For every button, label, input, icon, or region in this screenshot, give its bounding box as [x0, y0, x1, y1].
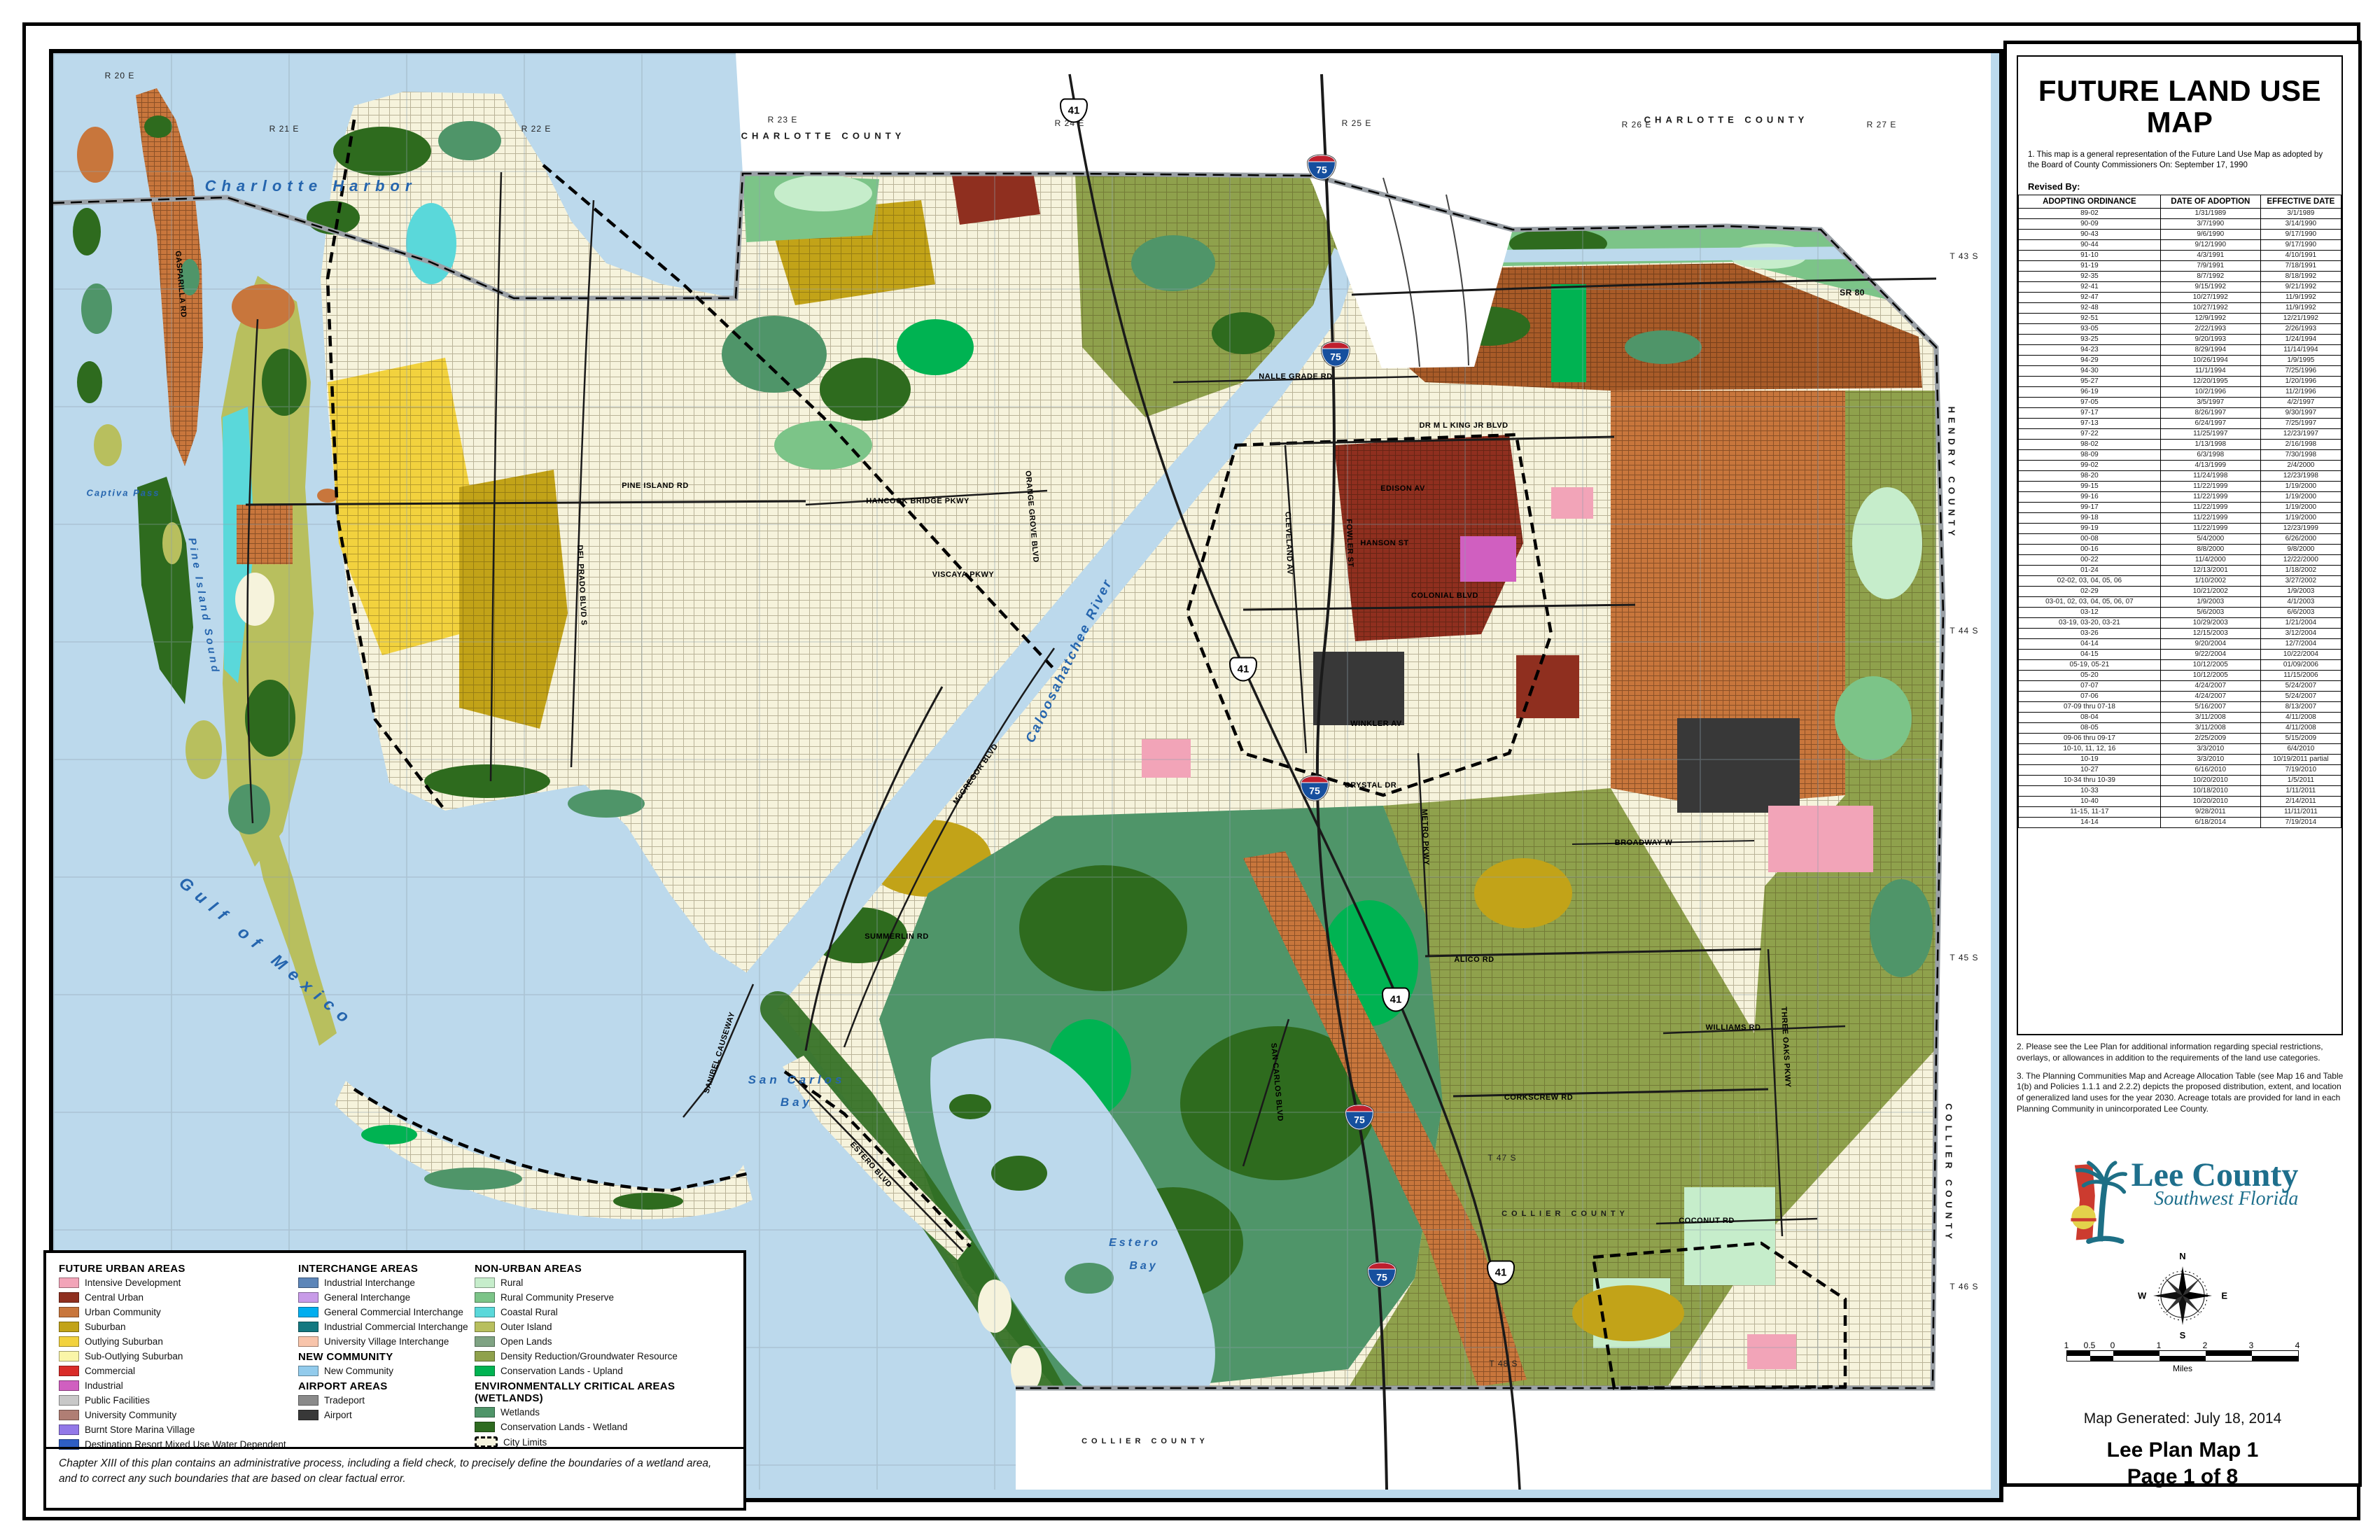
table-cell: 11/9/1992 — [2260, 292, 2341, 302]
table-cell: 6/24/1997 — [2160, 418, 2260, 428]
legend-swatch — [475, 1436, 498, 1448]
table-cell: 98-20 — [2019, 470, 2161, 481]
table-cell: 90-09 — [2019, 218, 2161, 229]
title-box: FUTURE LAND USE MAP 1. This map is a gen… — [2017, 55, 2343, 1035]
scale-bar: 10.501234 Miles — [2066, 1340, 2299, 1373]
table-row: 96-1910/2/199611/2/1996 — [2019, 386, 2341, 397]
table-cell: 09-06 thru 09-17 — [2019, 733, 2161, 743]
note-3: 3. The Planning Communities Map and Acre… — [2017, 1071, 2344, 1115]
table-cell: 6/18/2014 — [2160, 817, 2260, 827]
table-cell: 5/16/2007 — [2160, 701, 2260, 712]
table-cell: 10/21/2002 — [2160, 586, 2260, 596]
legend-swatch — [298, 1277, 318, 1288]
table-row: 90-449/12/19909/17/1990 — [2019, 239, 2341, 250]
table-cell: 11/11/2011 — [2260, 806, 2341, 817]
table-cell: 07-07 — [2019, 680, 2161, 691]
table-row: 10-34 thru 10-3910/20/20101/5/2011 — [2019, 775, 2341, 785]
legend-swatch — [59, 1307, 79, 1317]
table-cell: 7/9/1991 — [2160, 260, 2260, 271]
table-row: 00-2211/4/200012/22/2000 — [2019, 554, 2341, 565]
legend-swatch — [298, 1322, 318, 1332]
legend-item: Public Facilities — [59, 1395, 283, 1406]
compass-w: W — [2138, 1291, 2146, 1301]
table-cell: 92-51 — [2019, 313, 2161, 323]
table-cell: 1/5/2011 — [2260, 775, 2341, 785]
table-row: 99-1511/22/19991/19/2000 — [2019, 481, 2341, 491]
table-cell: 2/4/2000 — [2260, 460, 2341, 470]
table-row: 91-197/9/19917/18/1991 — [2019, 260, 2341, 271]
title-panel: FUTURE LAND USE MAP 1. This map is a gen… — [2003, 41, 2362, 1487]
table-cell: 9/17/1990 — [2260, 239, 2341, 250]
table-cell: 96-19 — [2019, 386, 2161, 397]
legend-item-label: New Community — [324, 1366, 393, 1376]
table-cell: 12/7/2004 — [2260, 638, 2341, 649]
table-cell: 03-19, 03-20, 03-21 — [2019, 617, 2161, 628]
table-cell: 11/24/1998 — [2160, 470, 2260, 481]
table-cell: 1/18/2002 — [2260, 565, 2341, 575]
table-row: 05-2010/12/200511/15/2006 — [2019, 670, 2341, 680]
legend-item: Burnt Store Marina Village — [59, 1424, 283, 1435]
legend-item-label: Intensive Development — [85, 1277, 181, 1288]
scale-tick: 1 — [2157, 1340, 2162, 1350]
table-row: 98-096/3/19987/30/1998 — [2019, 449, 2341, 460]
table-cell: 08-05 — [2019, 722, 2161, 733]
scale-ticks: 10.501234 — [2066, 1340, 2299, 1350]
table-cell: 9/30/1997 — [2260, 407, 2341, 418]
table-cell: 05-19, 05-21 — [2019, 659, 2161, 670]
table-cell: 02-02, 03, 04, 05, 06 — [2019, 575, 2161, 586]
table-cell: 7/19/2014 — [2260, 817, 2341, 827]
table-cell: 1/13/1998 — [2160, 439, 2260, 449]
table-cell: 12/9/1992 — [2160, 313, 2260, 323]
table-cell: 1/20/1996 — [2260, 376, 2341, 386]
col-header-effective: EFFECTIVE DATE — [2260, 195, 2341, 208]
table-row: 90-439/6/19909/17/1990 — [2019, 229, 2341, 239]
table-cell: 7/25/1997 — [2260, 418, 2341, 428]
table-cell: 11-15, 11-17 — [2019, 806, 2161, 817]
table-row: 93-259/20/19931/24/1994 — [2019, 334, 2341, 344]
legend-item: Outlying Suburban — [59, 1336, 283, 1347]
table-row: 89-021/31/19893/1/1989 — [2019, 208, 2341, 218]
compass-n: N — [2179, 1251, 2185, 1261]
table-cell: 3/1/1989 — [2260, 208, 2341, 218]
map-generated-date: Map Generated: July 18, 2014 — [2007, 1410, 2358, 1427]
legend-item: Commercial — [59, 1366, 283, 1376]
table-cell: 1/19/2000 — [2260, 491, 2341, 502]
table-cell: 98-09 — [2019, 449, 2161, 460]
table-row: 97-178/26/19979/30/1997 — [2019, 407, 2341, 418]
legend-swatch — [298, 1292, 318, 1303]
table-cell: 11/2/1996 — [2260, 386, 2341, 397]
legend-column-interchange: INTERCHANGE AREASIndustrial InterchangeG… — [298, 1261, 459, 1454]
table-cell: 9/6/1990 — [2160, 229, 2260, 239]
table-cell: 12/13/2001 — [2160, 565, 2260, 575]
table-cell: 91-10 — [2019, 250, 2161, 260]
table-cell: 97-13 — [2019, 418, 2161, 428]
table-cell: 3/27/2002 — [2260, 575, 2341, 586]
table-cell: 94-30 — [2019, 365, 2161, 376]
table-cell: 10/12/2005 — [2160, 659, 2260, 670]
legend-item: Tradeport — [298, 1395, 459, 1406]
legend-item-label: Burnt Store Marina Village — [85, 1424, 195, 1435]
legend-item-label: Industrial Interchange — [324, 1277, 415, 1288]
table-cell: 3/3/2010 — [2160, 743, 2260, 754]
legend-section-title: INTERCHANGE AREAS — [298, 1263, 459, 1275]
legend-item-label: Industrial Commercial Interchange — [324, 1322, 468, 1332]
table-cell: 4/3/1991 — [2160, 250, 2260, 260]
legend-item: General Commercial Interchange — [298, 1307, 459, 1317]
table-cell: 5/4/2000 — [2160, 533, 2260, 544]
legend-column-future-urban: FUTURE URBAN AREASIntensive DevelopmentC… — [59, 1261, 283, 1454]
legend-item-label: Urban Community — [85, 1307, 161, 1317]
table-cell: 1/31/1989 — [2160, 208, 2260, 218]
table-row: 10-10, 11, 12, 163/3/20106/4/2010 — [2019, 743, 2341, 754]
table-cell: 10-33 — [2019, 785, 2161, 796]
table-row: 10-276/16/20107/19/2010 — [2019, 764, 2341, 775]
legend-swatch — [59, 1366, 79, 1376]
table-cell: 03-12 — [2019, 607, 2161, 617]
legend-swatch — [298, 1307, 318, 1317]
table-cell: 9/21/1992 — [2260, 281, 2341, 292]
table-cell: 5/24/2007 — [2260, 680, 2341, 691]
table-row: 04-149/20/200412/7/2004 — [2019, 638, 2341, 649]
table-cell: 8/18/1992 — [2260, 271, 2341, 281]
table-cell: 1/9/1995 — [2260, 355, 2341, 365]
table-cell: 99-19 — [2019, 523, 2161, 533]
table-row: 90-093/7/19903/14/1990 — [2019, 218, 2341, 229]
table-cell: 03-26 — [2019, 628, 2161, 638]
table-row: 97-136/24/19977/25/1997 — [2019, 418, 2341, 428]
legend-swatch — [59, 1277, 79, 1288]
table-cell: 11/14/1994 — [2260, 344, 2341, 355]
legend-item: Rural Community Preserve — [475, 1292, 736, 1303]
table-cell: 14-14 — [2019, 817, 2161, 827]
table-cell: 00-16 — [2019, 544, 2161, 554]
legend-item: Urban Community — [59, 1307, 283, 1317]
table-cell: 4/24/2007 — [2160, 691, 2260, 701]
legend-item-label: Public Facilities — [85, 1395, 150, 1406]
table-cell: 92-35 — [2019, 271, 2161, 281]
table-cell: 11/22/1999 — [2160, 512, 2260, 523]
legend-item-label: Conservation Lands - Upland — [500, 1366, 623, 1376]
table-cell: 4/11/2008 — [2260, 712, 2341, 722]
table-cell: 9/8/2000 — [2260, 544, 2341, 554]
table-cell: 10/27/1992 — [2160, 292, 2260, 302]
scale-tick: 0 — [2110, 1340, 2115, 1350]
legend-item-label: Commercial — [85, 1366, 135, 1376]
table-row: 97-2211/25/199712/23/1997 — [2019, 428, 2341, 439]
legend-section-title: NEW COMMUNITY — [298, 1351, 459, 1363]
compass-rose: N S W E — [2149, 1262, 2216, 1329]
table-row: 03-125/6/20036/6/2003 — [2019, 607, 2341, 617]
legend-item-label: Outer Island — [500, 1322, 552, 1332]
legend-swatch — [475, 1292, 495, 1303]
table-cell: 91-19 — [2019, 260, 2161, 271]
legend-item-label: Open Lands — [500, 1336, 552, 1347]
table-cell: 10/12/2005 — [2160, 670, 2260, 680]
table-cell: 01/09/2006 — [2260, 659, 2341, 670]
legend-section-title: AIRPORT AREAS — [298, 1380, 459, 1392]
table-cell: 2/14/2011 — [2260, 796, 2341, 806]
table-row: 95-2712/20/19951/20/1996 — [2019, 376, 2341, 386]
table-cell: 6/16/2010 — [2160, 764, 2260, 775]
table-cell: 97-17 — [2019, 407, 2161, 418]
table-cell: 10-10, 11, 12, 16 — [2019, 743, 2161, 754]
table-cell: 00-08 — [2019, 533, 2161, 544]
table-row: 00-168/8/20009/8/2000 — [2019, 544, 2341, 554]
table-row: 10-3310/18/20101/11/2011 — [2019, 785, 2341, 796]
notes-2-3: 2. Please see the Lee Plan for additiona… — [2017, 1042, 2344, 1122]
table-cell: 99-02 — [2019, 460, 2161, 470]
legend-item-label: General Commercial Interchange — [324, 1307, 463, 1317]
legend-swatch — [59, 1380, 79, 1391]
table-cell: 3/11/2008 — [2160, 712, 2260, 722]
legend-item-label: Sub-Outlying Suburban — [85, 1351, 183, 1361]
note-1: 1. This map is a general representation … — [2028, 150, 2332, 171]
table-cell: 7/19/2010 — [2260, 764, 2341, 775]
table-cell: 1/10/2002 — [2160, 575, 2260, 586]
plan-map-name: Lee Plan Map 1 — [2007, 1438, 2358, 1462]
table-row: 94-238/29/199411/14/1994 — [2019, 344, 2341, 355]
table-cell: 6/26/2000 — [2260, 533, 2341, 544]
table-cell: 10-27 — [2019, 764, 2161, 775]
table-cell: 12/20/1995 — [2160, 376, 2260, 386]
table-row: 94-2910/26/19941/9/1995 — [2019, 355, 2341, 365]
table-cell: 12/23/1999 — [2260, 523, 2341, 533]
table-cell: 3/7/1990 — [2160, 218, 2260, 229]
table-cell: 99-17 — [2019, 502, 2161, 512]
table-cell: 10-40 — [2019, 796, 2161, 806]
table-cell: 4/24/2007 — [2160, 680, 2260, 691]
legend-item: Industrial — [59, 1380, 283, 1391]
table-row: 07-074/24/20075/24/2007 — [2019, 680, 2341, 691]
legend-item: Industrial Commercial Interchange — [298, 1322, 459, 1332]
table-cell: 94-29 — [2019, 355, 2161, 365]
table-row: 07-064/24/20075/24/2007 — [2019, 691, 2341, 701]
title-line-1: FUTURE LAND USE — [2024, 75, 2336, 106]
table-cell: 10/19/2011 partial — [2260, 754, 2341, 764]
table-cell: 93-05 — [2019, 323, 2161, 334]
table-cell: 9/20/1993 — [2160, 334, 2260, 344]
legend-item-label: Rural Community Preserve — [500, 1292, 614, 1303]
table-row: 02-02, 03, 04, 05, 061/10/20023/27/2002 — [2019, 575, 2341, 586]
table-cell: 05-20 — [2019, 670, 2161, 680]
table-cell: 9/22/2004 — [2160, 649, 2260, 659]
table-row: 92-419/15/19929/21/1992 — [2019, 281, 2341, 292]
table-row: 97-053/5/19974/2/1997 — [2019, 397, 2341, 407]
table-cell: 3/12/2004 — [2260, 628, 2341, 638]
table-cell: 1/24/1994 — [2260, 334, 2341, 344]
table-cell: 2/22/1993 — [2160, 323, 2260, 334]
table-row: 08-043/11/20084/11/2008 — [2019, 712, 2341, 722]
legend-section-title: ENVIRONMENTALLY CRITICAL AREAS (WETLANDS… — [475, 1380, 736, 1404]
legend-swatch — [59, 1322, 79, 1332]
legend-item: City Limits — [475, 1436, 736, 1448]
legend-item: Airport — [298, 1410, 459, 1420]
table-cell: 07-09 thru 07-18 — [2019, 701, 2161, 712]
legend-item: Coastal Rural — [475, 1307, 736, 1317]
legend-swatch — [475, 1336, 495, 1347]
table-cell: 1/21/2004 — [2260, 617, 2341, 628]
legend-swatch — [59, 1336, 79, 1347]
table-cell: 11/15/2006 — [2260, 670, 2341, 680]
legend-item-label: Coastal Rural — [500, 1307, 558, 1317]
table-cell: 97-22 — [2019, 428, 2161, 439]
table-cell: 04-15 — [2019, 649, 2161, 659]
legend-item-label: General Interchange — [324, 1292, 410, 1303]
table-row: 03-01, 02, 03, 04, 05, 06, 071/9/20034/1… — [2019, 596, 2341, 607]
table-cell: 9/17/1990 — [2260, 229, 2341, 239]
table-row: 92-5112/9/199212/21/1992 — [2019, 313, 2341, 323]
legend-item: Outer Island — [475, 1322, 736, 1332]
table-cell: 10/26/1994 — [2160, 355, 2260, 365]
table-row: 10-4010/20/20102/14/2011 — [2019, 796, 2341, 806]
table-cell: 99-16 — [2019, 491, 2161, 502]
table-cell: 93-25 — [2019, 334, 2161, 344]
legend-item-label: Suburban — [85, 1322, 126, 1332]
table-row: 99-024/13/19992/4/2000 — [2019, 460, 2341, 470]
legend-item: Sub-Outlying Suburban — [59, 1351, 283, 1361]
table-cell: 1/11/2011 — [2260, 785, 2341, 796]
legend-item-label: Central Urban — [85, 1292, 143, 1303]
table-cell: 92-48 — [2019, 302, 2161, 313]
table-cell: 07-06 — [2019, 691, 2161, 701]
table-row: 98-021/13/19982/16/1998 — [2019, 439, 2341, 449]
table-cell: 03-01, 02, 03, 04, 05, 06, 07 — [2019, 596, 2161, 607]
table-row: 05-19, 05-2110/12/200501/09/2006 — [2019, 659, 2341, 670]
table-row: 03-2612/15/20033/12/2004 — [2019, 628, 2341, 638]
table-row: 99-1911/22/199912/23/1999 — [2019, 523, 2341, 533]
table-cell: 3/11/2008 — [2160, 722, 2260, 733]
table-cell: 4/1/2003 — [2260, 596, 2341, 607]
legend-swatch — [475, 1307, 495, 1317]
legend-wetland-note: Chapter XIII of this plan contains an ad… — [46, 1447, 743, 1508]
legend-swatch — [59, 1395, 79, 1406]
table-cell: 11/4/2000 — [2160, 554, 2260, 565]
table-cell: 98-02 — [2019, 439, 2161, 449]
table-row: 98-2011/24/199812/23/1998 — [2019, 470, 2341, 481]
legend-item-label: City Limits — [503, 1437, 547, 1448]
table-cell: 99-18 — [2019, 512, 2161, 523]
legend-swatch — [298, 1410, 318, 1420]
table-cell: 90-43 — [2019, 229, 2161, 239]
legend-item-label: Tradeport — [324, 1395, 365, 1406]
legend-swatch — [475, 1407, 495, 1417]
table-cell: 12/15/2003 — [2160, 628, 2260, 638]
note-2: 2. Please see the Lee Plan for additiona… — [2017, 1042, 2344, 1064]
table-row: 99-1811/22/19991/19/2000 — [2019, 512, 2341, 523]
table-cell: 8/8/2000 — [2160, 544, 2260, 554]
legend-item: Industrial Interchange — [298, 1277, 459, 1288]
legend-section-title: NON-URBAN AREAS — [475, 1263, 736, 1275]
table-cell: 92-47 — [2019, 292, 2161, 302]
table-cell: 02-29 — [2019, 586, 2161, 596]
legend-item: Wetlands — [475, 1407, 736, 1417]
table-row: 00-085/4/20006/26/2000 — [2019, 533, 2341, 544]
legend-section-title: FUTURE URBAN AREAS — [59, 1263, 283, 1275]
legend-item-label: Wetlands — [500, 1407, 540, 1417]
table-cell: 10/18/2010 — [2160, 785, 2260, 796]
table-cell: 99-15 — [2019, 481, 2161, 491]
legend-item: Conservation Lands - Upland — [475, 1366, 736, 1376]
legend-item: Rural — [475, 1277, 736, 1288]
table-cell: 3/5/1997 — [2160, 397, 2260, 407]
scale-tick: 4 — [2295, 1340, 2300, 1350]
table-cell: 95-27 — [2019, 376, 2161, 386]
table-cell: 9/12/1990 — [2160, 239, 2260, 250]
table-cell: 7/25/1996 — [2260, 365, 2341, 376]
table-cell: 8/26/1997 — [2160, 407, 2260, 418]
compass-s: S — [2180, 1330, 2186, 1340]
table-cell: 8/29/1994 — [2160, 344, 2260, 355]
table-cell: 97-05 — [2019, 397, 2161, 407]
table-row: 08-053/11/20084/11/2008 — [2019, 722, 2341, 733]
legend-item-label: Density Reduction/Groundwater Resource — [500, 1351, 678, 1361]
table-cell: 1/19/2000 — [2260, 512, 2341, 523]
table-cell: 1/9/2003 — [2260, 586, 2341, 596]
table-cell: 10/27/1992 — [2160, 302, 2260, 313]
legend-swatch — [475, 1366, 495, 1376]
scale-tick: 1 — [2064, 1340, 2069, 1350]
ordinance-table-body: 89-021/31/19893/1/198990-093/7/19903/14/… — [2019, 208, 2341, 827]
legend-item-label: Conservation Lands - Wetland — [500, 1422, 627, 1432]
table-cell: 08-04 — [2019, 712, 2161, 722]
table-cell: 10/29/2003 — [2160, 617, 2260, 628]
revised-by-label: Revised By: — [2028, 181, 2332, 192]
legend-item: Central Urban — [59, 1292, 283, 1303]
table-cell: 92-41 — [2019, 281, 2161, 292]
table-cell: 2/26/1993 — [2260, 323, 2341, 334]
palm-tree-icon — [2067, 1158, 2127, 1248]
legend-swatch — [298, 1366, 318, 1376]
table-cell: 89-02 — [2019, 208, 2161, 218]
table-cell: 10-34 thru 10-39 — [2019, 775, 2161, 785]
table-cell: 2/16/1998 — [2260, 439, 2341, 449]
legend-item: General Interchange — [298, 1292, 459, 1303]
table-cell: 5/24/2007 — [2260, 691, 2341, 701]
scale-unit: Miles — [2066, 1364, 2299, 1373]
legend-item-label: Rural — [500, 1277, 523, 1288]
legend-item-label: Outlying Suburban — [85, 1336, 163, 1347]
legend-item-label: University Village Interchange — [324, 1336, 449, 1347]
table-cell: 00-22 — [2019, 554, 2161, 565]
table-cell: 4/13/1999 — [2160, 460, 2260, 470]
table-cell: 90-44 — [2019, 239, 2161, 250]
table-cell: 3/14/1990 — [2260, 218, 2341, 229]
legend-swatch — [475, 1351, 495, 1361]
table-row: 92-358/7/19928/18/1992 — [2019, 271, 2341, 281]
table-cell: 9/28/2011 — [2160, 806, 2260, 817]
table-row: 99-1711/22/19991/19/2000 — [2019, 502, 2341, 512]
table-cell: 12/21/1992 — [2260, 313, 2341, 323]
table-cell: 10/20/2010 — [2160, 775, 2260, 785]
legend-swatch — [475, 1277, 495, 1288]
table-cell: 12/22/2000 — [2260, 554, 2341, 565]
table-cell: 3/3/2010 — [2160, 754, 2260, 764]
table-cell: 04-14 — [2019, 638, 2161, 649]
table-cell: 10/22/2004 — [2260, 649, 2341, 659]
legend-item: Conservation Lands - Wetland — [475, 1422, 736, 1432]
page-title: FUTURE LAND USE MAP — [2024, 75, 2336, 139]
scale-tick: 3 — [2249, 1340, 2254, 1350]
table-cell: 11/1/1994 — [2160, 365, 2260, 376]
legend-item-label: Industrial — [85, 1380, 123, 1391]
table-cell: 4/11/2008 — [2260, 722, 2341, 733]
table-cell: 11/22/1999 — [2160, 491, 2260, 502]
legend: FUTURE URBAN AREASIntensive DevelopmentC… — [43, 1250, 746, 1511]
legend-swatch — [59, 1292, 79, 1303]
table-cell: 94-23 — [2019, 344, 2161, 355]
